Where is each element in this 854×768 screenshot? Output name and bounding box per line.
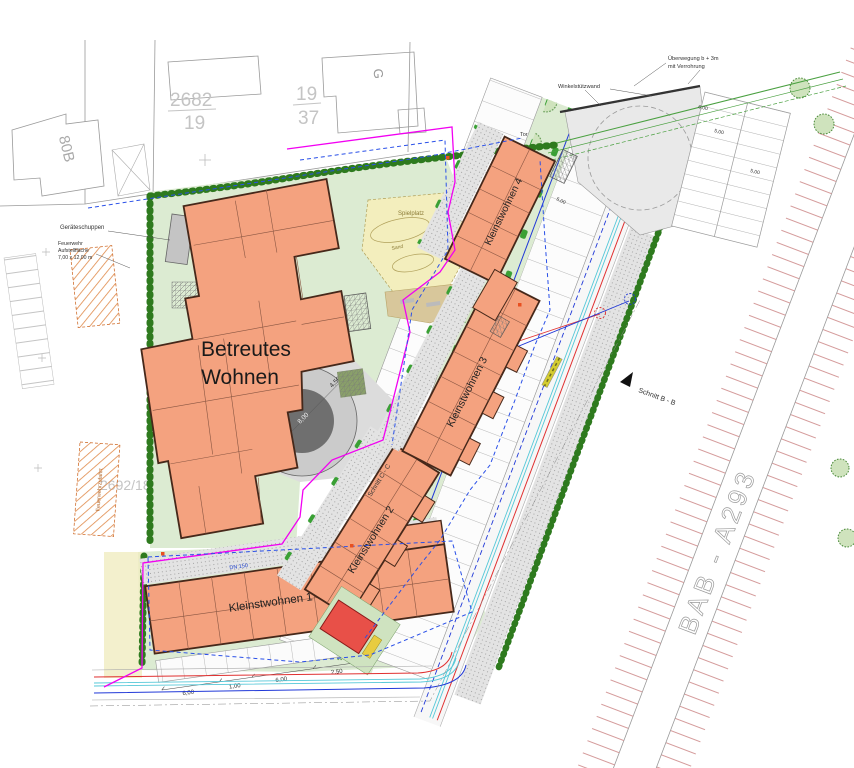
ueberwegung-label-2: mit Verrohrung [668,64,705,70]
k1-dim-4: 2,50 [331,669,344,677]
house-g-outline [322,52,426,134]
road-edge [92,697,420,700]
feuerwehr-label-3: 7,00 x 12,00 m [58,255,92,261]
hydrant [518,303,522,307]
k1-dim-1: 6,00 [182,689,195,697]
spielplatz-label: Spielplatz [398,211,424,217]
house-g-label: G [371,68,387,79]
parcel-2682-denominator: 19 [184,113,205,134]
site-plan-drawing: 2682 19 19 37 80B G 2692/18 BAB - A293 [0,0,854,768]
tor-label: Tor [520,132,528,138]
betreutes-wohnen-label-1: Betreutes [201,338,291,361]
ueberwegung-label-1: Überwegung b + 3m [668,55,719,62]
winkelstuetzwand-label: Winkelstützwand [558,84,600,90]
hydrant [161,552,165,556]
garage-cross-box [112,144,150,196]
betreutes-wohnen-label-2: Wohnen [201,366,279,389]
site-plan: 2682 19 19 37 80B G 2692/18 BAB - A293 [0,0,854,768]
hydrant [350,544,354,548]
geraeteschuppen-label: Geräteschuppen [60,225,104,231]
feuerwehr-label-2: Aufstellfläche [58,248,89,254]
schnitt-bb-label: Schnitt B - B [637,387,676,407]
sand-path-strip [104,552,142,678]
survey-cross [199,154,211,166]
section-marker-bb: Schnitt B - B [620,372,677,407]
parcel-2682-numerator: 2682 [170,90,212,111]
feuerwehr-label-1: Feuerwehr [58,241,83,247]
left-stair-band [4,254,54,389]
parcel-19-denominator: 37 [298,108,319,129]
house-80b-outline [12,114,104,196]
section-arrow [620,372,633,387]
hydrant [446,156,450,160]
parcel-19-numerator: 19 [296,84,317,105]
